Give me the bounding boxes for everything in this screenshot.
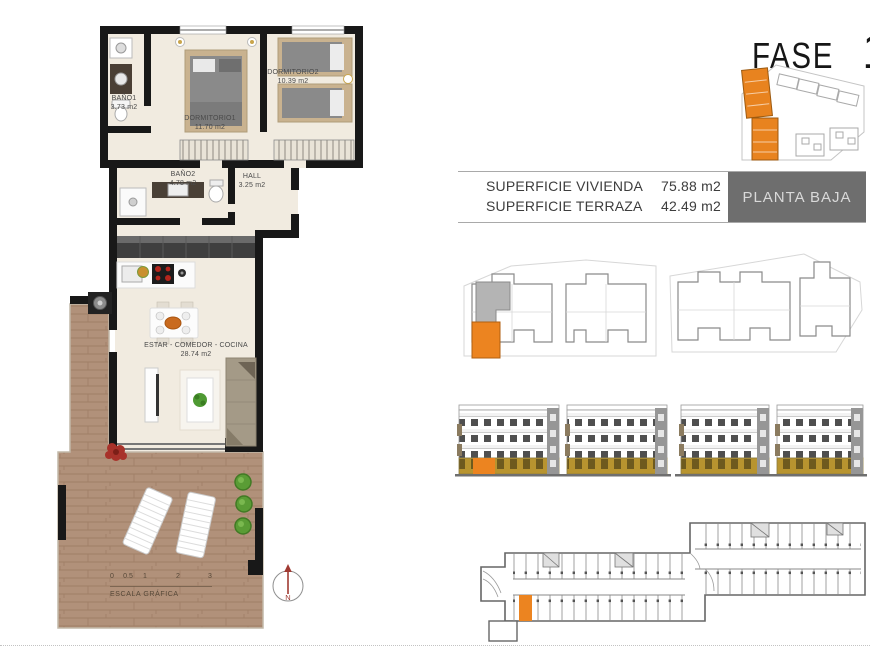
area-table: SUPERFICIE VIVIENDA 75.88 m2 SUPERFICIE … bbox=[458, 171, 866, 223]
table-row: SUPERFICIE TERRAZA 42.49 m2 bbox=[486, 196, 728, 216]
utility-unit bbox=[88, 292, 112, 314]
dining-table bbox=[150, 302, 198, 344]
site-plan bbox=[736, 60, 868, 164]
area-label: SUPERFICIE TERRAZA bbox=[486, 196, 661, 216]
elevation-facade-4 bbox=[775, 405, 863, 474]
room-label-hall: HALL3.25 m2 bbox=[239, 172, 266, 191]
plan-sheet: BAÑO13.73 m2 DORMITORIO111.70 m2 DORMITO… bbox=[0, 0, 870, 652]
garage-plan bbox=[455, 503, 868, 648]
area-table-values: SUPERFICIE VIVIENDA 75.88 m2 SUPERFICIE … bbox=[458, 172, 728, 222]
highlighted-parking-space bbox=[519, 595, 532, 621]
elevation-facade-2 bbox=[565, 405, 667, 474]
scale-tick: 2 bbox=[176, 573, 180, 580]
key-plan-highlighted bbox=[456, 250, 662, 378]
key-plan-secondary bbox=[664, 246, 868, 378]
room-label-bano1: BAÑO13.73 m2 bbox=[111, 94, 138, 113]
scale-label: ESCALA GRÁFICA bbox=[110, 591, 179, 598]
elevation-facade-3 bbox=[679, 405, 769, 474]
highlighted-terrace-orange bbox=[472, 322, 500, 358]
scale-tick: 0.5 bbox=[123, 573, 133, 580]
scale-tick: 1 bbox=[143, 573, 147, 580]
scale-tick: 3 bbox=[208, 573, 212, 580]
room-label-dormitorio2: DORMITORIO210.39 m2 bbox=[267, 68, 318, 87]
scale-line bbox=[110, 586, 212, 587]
floor-badge: PLANTA BAJA bbox=[728, 172, 866, 222]
north-arrow: N bbox=[265, 560, 311, 610]
area-value: 75.88 m2 bbox=[661, 176, 721, 196]
room-label-dormitorio1: DORMITORIO111.70 m2 bbox=[184, 114, 235, 133]
elevation-facade-1 bbox=[457, 405, 559, 474]
building-elevations bbox=[455, 402, 867, 484]
room-label-estar-comedor-cocina: ESTAR - COMEDOR - COCINA28.74 m2 bbox=[144, 341, 248, 360]
bedroom2-furniture bbox=[274, 38, 354, 160]
table-row: SUPERFICIE VIVIENDA 75.88 m2 bbox=[486, 176, 728, 196]
area-label: SUPERFICIE VIVIENDA bbox=[486, 176, 661, 196]
sheet-bottom-edge bbox=[0, 645, 870, 646]
svg-text:N: N bbox=[285, 593, 290, 602]
bedroom1-furniture bbox=[176, 38, 257, 161]
scale-tick: 0 bbox=[110, 573, 114, 580]
area-value: 42.49 m2 bbox=[661, 196, 721, 216]
room-label-bano2: BAÑO24.78 m2 bbox=[170, 170, 197, 189]
highlighted-ground-unit bbox=[473, 458, 495, 474]
